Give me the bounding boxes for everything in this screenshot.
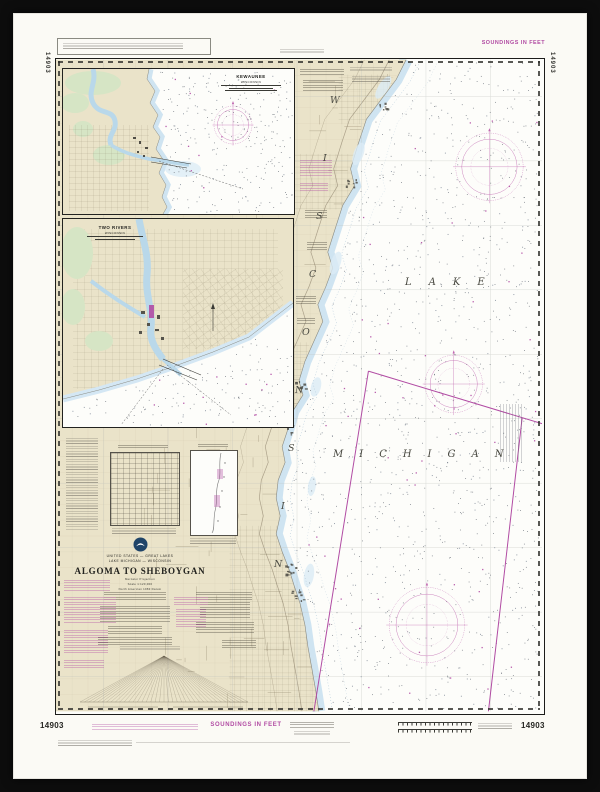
state-letter: I [323,153,327,164]
nautical-mile-scale-bar [398,722,472,727]
general-note [108,626,162,634]
chart-note [300,69,344,76]
scale-bar [95,239,135,240]
kewaunee-inset-title: KEWAUNEE WISCONSIN [213,74,289,91]
scale-bar [225,90,277,91]
lake-label: LAKE [405,277,502,288]
source-diagram-caption [112,528,176,534]
state-letter: O [302,327,310,338]
caution-note [300,160,332,176]
state-letter: C [309,269,316,280]
caution-note [64,630,108,654]
catalog-note-text [63,43,183,49]
state-letter: I [281,501,285,512]
state-letter: W [330,95,340,106]
state-letter: S [316,211,323,222]
source-diagram-title [118,445,168,449]
framed-nautical-chart: SOUNDINGS IN FEET 14903 14903 [0,0,600,792]
chart-number-bottom-left: 14903 [40,721,64,730]
compass-rose-icon [453,128,526,203]
logarithmic-speed-scale [78,652,250,712]
catalog-note-box [57,38,211,55]
index-map-title [198,444,228,448]
chart-note [350,67,392,72]
caution-note [64,580,110,592]
edition-note [280,49,324,53]
chart-note [307,242,327,252]
caution-note [300,183,328,191]
top-minute-scale [58,61,540,63]
two-rivers-inset-title: TWO RIVERS WISCONSIN [77,225,153,240]
bottom-caution-note [92,724,198,730]
print-note-line [136,742,350,744]
print-note [58,740,132,746]
caution-note [64,597,116,623]
compass-rose-icon [423,350,485,415]
state-letter: N [274,559,282,570]
chart-note [352,76,390,83]
agency-imprint [294,731,330,736]
source-diagram [110,452,180,526]
inset-two-rivers: TWO RIVERS WISCONSIN [62,218,294,428]
right-minute-scale [538,61,540,710]
left-minute-scale [58,61,60,710]
index-map [190,450,238,536]
compass-rose-icon [212,101,253,146]
chart-number-bottom-right: 14903 [521,721,545,730]
yards-scale-bar [398,729,472,734]
inset-kewaunee: KEWAUNEE WISCONSIN [62,68,295,215]
fan-diagram-title [120,646,180,651]
soundings-units-label-top: SOUNDINGS IN FEET [440,40,545,46]
agency-imprint [290,722,334,729]
chart-note [303,80,343,92]
two-rivers-map [63,219,293,427]
table-note [222,640,256,649]
state-letter: S [288,443,295,454]
nation-line: UNITED STATES — GREAT LAKES [65,554,215,558]
general-note [98,637,172,646]
chart-note [297,318,315,325]
chart-number-left-edge: 14903 [44,52,50,74]
compass-rose-icon [386,582,467,665]
chart-title: ALGOMA TO SHEBOYGAN [65,566,215,576]
michigan-label: MICHIGAN [333,449,519,460]
scale-bar [87,236,143,237]
soundings-units-label-bottom: SOUNDINGS IN FEET [205,722,287,728]
caution-note [176,609,206,627]
state-letter: N [295,385,303,396]
noaa-logo-icon [133,537,148,552]
scale-bar [229,88,273,89]
publisher-note [478,723,512,731]
region-line: LAKE MICHIGAN — WISCONSIN [65,559,215,563]
chart-note [296,296,316,305]
scale-bar [221,85,281,86]
chart-number-right-edge: 14903 [549,52,555,74]
tide-table [66,438,98,530]
caution-note [174,597,208,605]
